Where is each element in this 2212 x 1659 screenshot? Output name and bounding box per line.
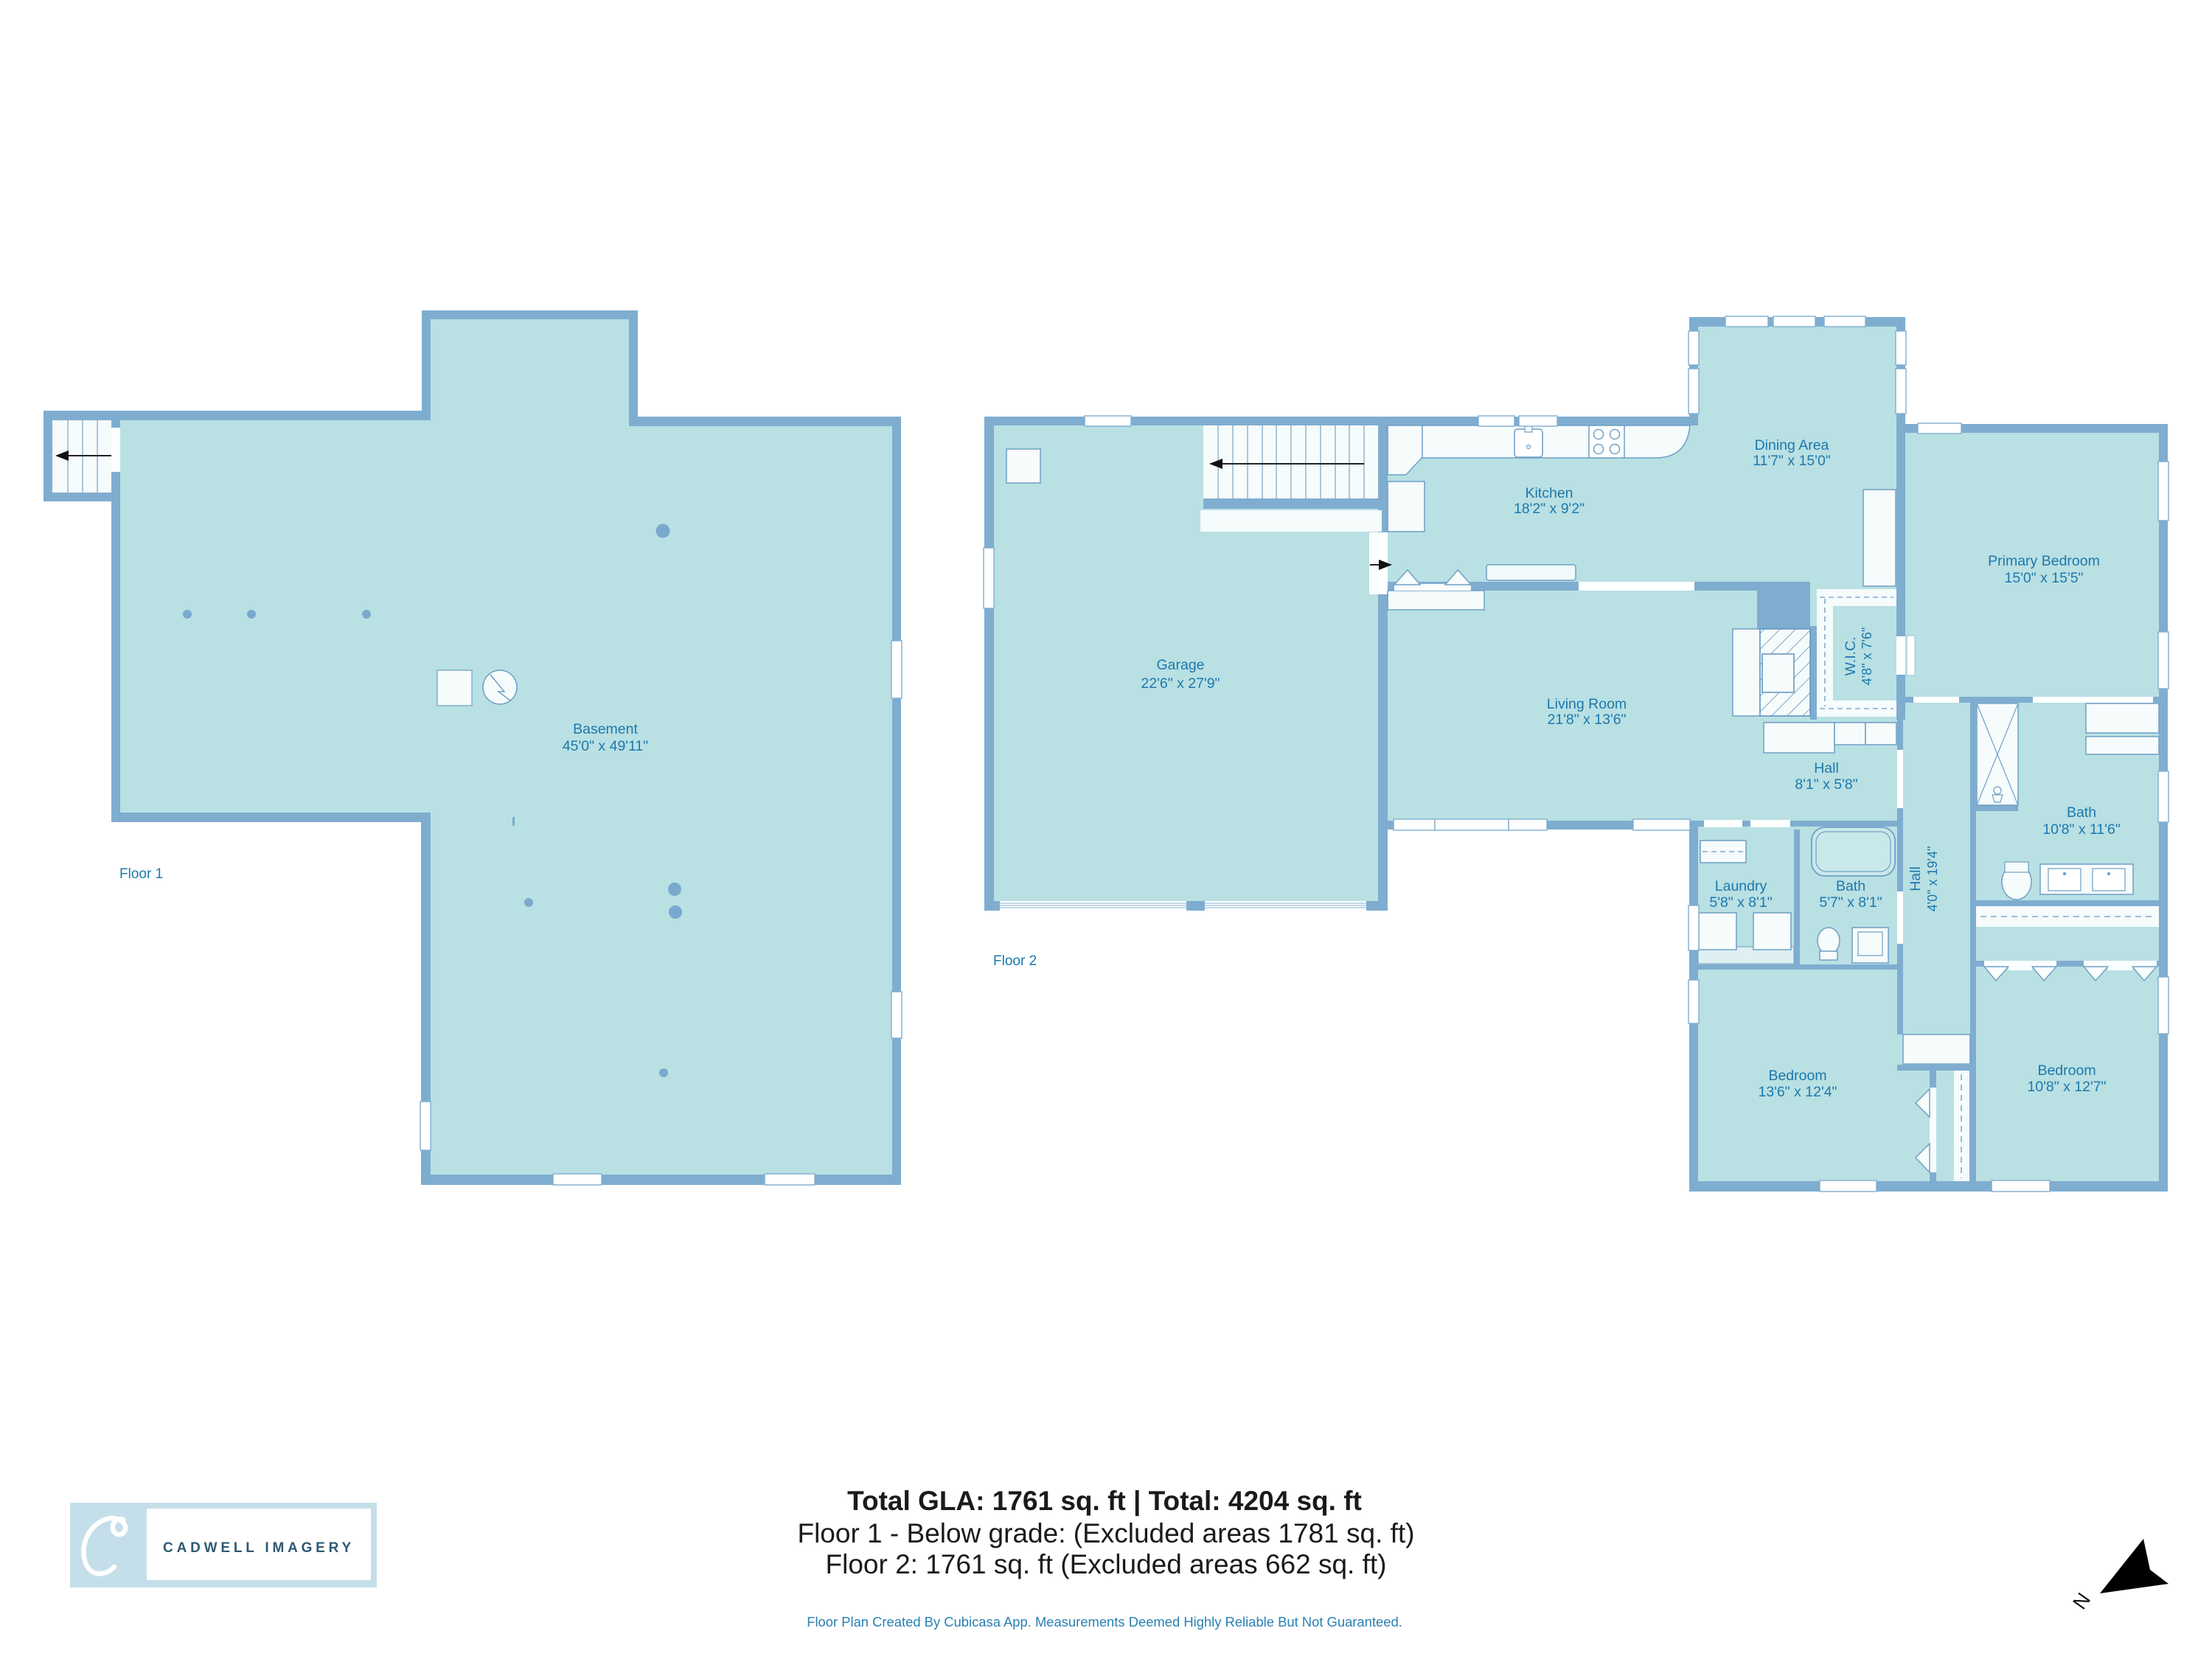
- svg-text:4'8" x 7'6": 4'8" x 7'6": [1860, 627, 1874, 686]
- svg-text:Floor Plan Created By Cubicasa: Floor Plan Created By Cubicasa App. Meas…: [807, 1614, 1402, 1630]
- svg-text:13'6" x 12'4": 13'6" x 12'4": [1759, 1084, 1837, 1100]
- svg-text:Hall: Hall: [1907, 866, 1924, 891]
- svg-text:22'6" x 27'9": 22'6" x 27'9": [1141, 675, 1220, 692]
- svg-text:Floor 1 - Below grade: (Exclud: Floor 1 - Below grade: (Excluded areas 1…: [797, 1518, 1414, 1548]
- svg-text:W.I.C.: W.I.C.: [1843, 636, 1859, 675]
- svg-text:Bath: Bath: [1836, 878, 1865, 894]
- svg-text:5'7" x 8'1": 5'7" x 8'1": [1819, 894, 1882, 911]
- svg-text:Total GLA: 1761 sq. ft | Total: Total GLA: 1761 sq. ft | Total: 4204 sq.…: [847, 1486, 1362, 1517]
- svg-text:Bedroom: Bedroom: [2037, 1062, 2096, 1079]
- svg-text:CADWELL IMAGERY: CADWELL IMAGERY: [163, 1540, 355, 1556]
- svg-text:Basement: Basement: [573, 721, 638, 737]
- svg-text:Garage: Garage: [1156, 657, 1204, 673]
- svg-text:10'8" x 11'6": 10'8" x 11'6": [2042, 821, 2121, 838]
- svg-text:8'1" x 5'8": 8'1" x 5'8": [1795, 776, 1857, 793]
- svg-text:11'7" x 15'0": 11'7" x 15'0": [1753, 453, 1831, 469]
- svg-text:Bedroom: Bedroom: [1768, 1068, 1826, 1084]
- svg-text:Floor 2: Floor 2: [993, 953, 1037, 969]
- svg-text:Primary Bedroom: Primary Bedroom: [1988, 553, 2100, 569]
- svg-text:Bath: Bath: [2067, 804, 2096, 821]
- svg-text:Laundry: Laundry: [1715, 878, 1767, 894]
- svg-text:18'2" x 9'2": 18'2" x 9'2": [1514, 501, 1585, 517]
- svg-text:Hall: Hall: [1814, 760, 1839, 776]
- svg-text:21'8" x 13'6": 21'8" x 13'6": [1548, 712, 1627, 728]
- svg-text:Living Room: Living Room: [1547, 696, 1627, 712]
- svg-text:Dining Area: Dining Area: [1755, 437, 1829, 453]
- svg-text:Floor 2: 1761 sq. ft (Excluded: Floor 2: 1761 sq. ft (Excluded areas 662…: [826, 1549, 1387, 1579]
- svg-text:5'8" x 8'1": 5'8" x 8'1": [1709, 894, 1772, 911]
- svg-text:15'0" x 15'5": 15'0" x 15'5": [2005, 570, 2084, 586]
- svg-text:Floor 1: Floor 1: [119, 866, 163, 882]
- svg-text:10'8" x 12'7": 10'8" x 12'7": [2028, 1079, 2107, 1095]
- svg-text:45'0" x 49'11": 45'0" x 49'11": [563, 738, 648, 754]
- svg-text:4'0" x 19'4": 4'0" x 19'4": [1925, 846, 1940, 912]
- svg-text:Kitchen: Kitchen: [1525, 485, 1573, 501]
